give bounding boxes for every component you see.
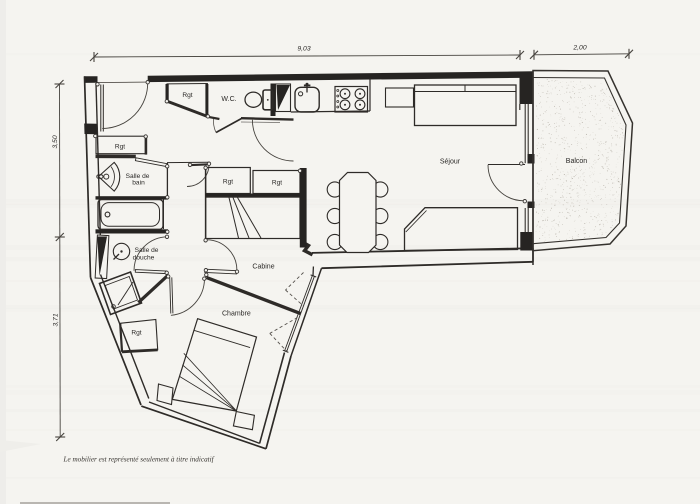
svg-text:Balcon: Balcon: [566, 158, 588, 165]
svg-text:9,03: 9,03: [297, 46, 310, 53]
svg-text:Séjour: Séjour: [440, 159, 461, 166]
svg-text:2,00: 2,00: [572, 45, 586, 52]
svg-text:Rgt: Rgt: [115, 144, 125, 151]
svg-text:Rgt: Rgt: [272, 180, 282, 187]
svg-text:Cabine: Cabine: [252, 264, 274, 271]
svg-text:bain: bain: [132, 179, 145, 186]
svg-text:Rgt: Rgt: [223, 179, 233, 186]
svg-text:douche: douche: [133, 255, 155, 262]
svg-text:W.C.: W.C.: [221, 96, 236, 103]
svg-text:3,71: 3,71: [53, 313, 60, 326]
svg-text:Rgt: Rgt: [182, 92, 192, 99]
svg-text:Rgt: Rgt: [131, 330, 141, 337]
svg-text:Salle de: Salle de: [135, 247, 159, 254]
svg-text:Chambre: Chambre: [222, 310, 251, 317]
svg-text:Le mobilier est représenté seu: Le mobilier est représenté seulement à t…: [63, 456, 215, 464]
svg-text:3,50: 3,50: [52, 135, 59, 148]
